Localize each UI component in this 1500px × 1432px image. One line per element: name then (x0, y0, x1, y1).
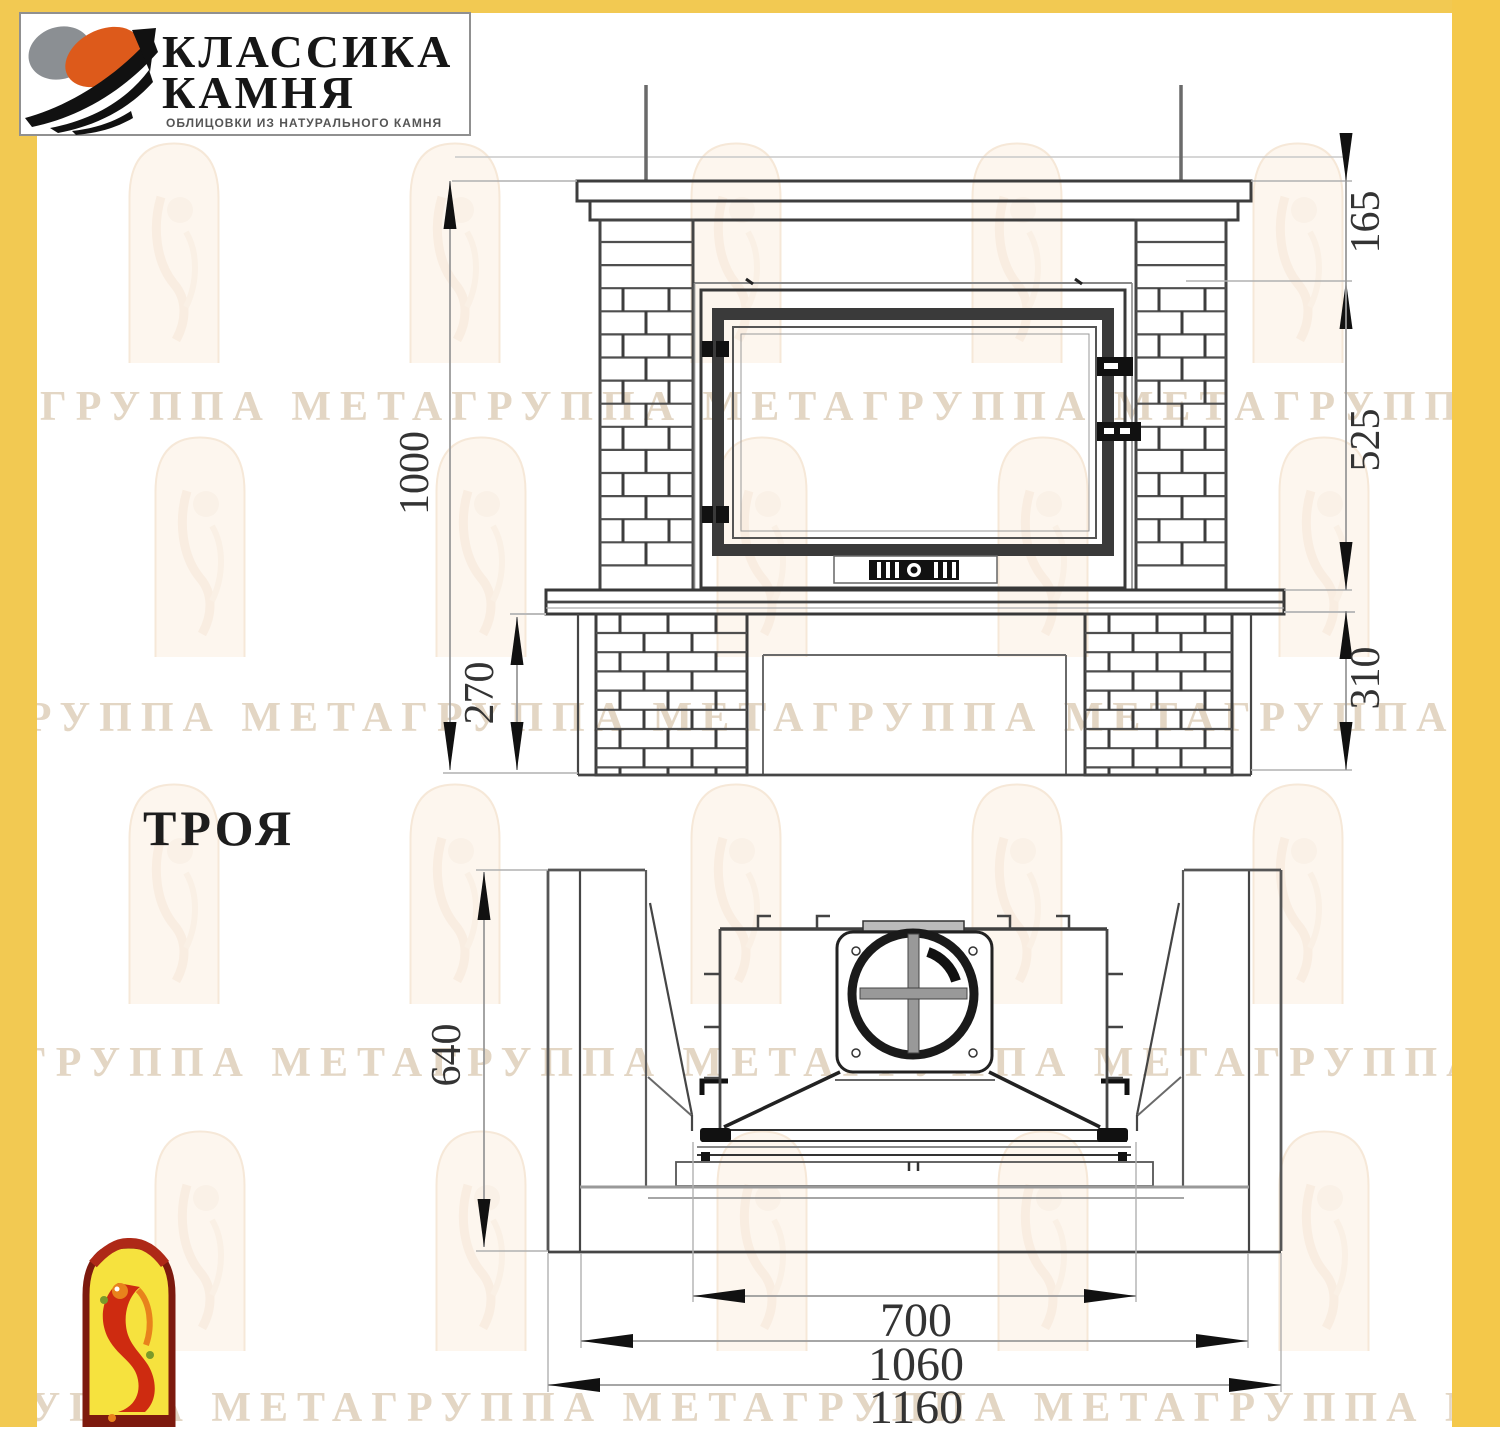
svg-text:270: 270 (457, 662, 503, 725)
svg-text:КАМНЯ: КАМНЯ (162, 67, 356, 118)
svg-text:1160: 1160 (869, 1381, 963, 1427)
svg-text:310: 310 (1343, 647, 1389, 710)
svg-text:ГРУППА МЕТАГРУППА МЕТАГРУППА М: ГРУППА МЕТАГРУППА МЕТАГРУППА МЕТАГРУППА … (0, 1385, 1500, 1427)
svg-text:640: 640 (424, 1024, 470, 1087)
svg-text:165: 165 (1343, 191, 1389, 254)
svg-text:ГРУППА МЕТАГРУППА МЕТАГРУППА М: ГРУППА МЕТАГРУППА МЕТАГРУППА МЕТАГРУППА … (40, 384, 1500, 430)
svg-text:ГРУППА МЕТАГРУППА МЕТАГРУППА М: ГРУППА МЕТАГРУППА МЕТАГРУППА МЕТАГРУППА … (20, 1040, 1500, 1086)
svg-text:525: 525 (1343, 409, 1389, 472)
svg-text:ТРОЯ: ТРОЯ (143, 800, 295, 856)
svg-text:1000: 1000 (392, 431, 438, 515)
svg-text:ОБЛИЦОВКИ ИЗ НАТУРАЛЬНОГО КАМН: ОБЛИЦОВКИ ИЗ НАТУРАЛЬНОГО КАМНЯ (166, 116, 442, 130)
svg-text:ГРУППА МЕТАГРУППА МЕТАГРУППА М: ГРУППА МЕТАГРУППА МЕТАГРУППА МЕТАГРУППА … (0, 695, 1500, 741)
